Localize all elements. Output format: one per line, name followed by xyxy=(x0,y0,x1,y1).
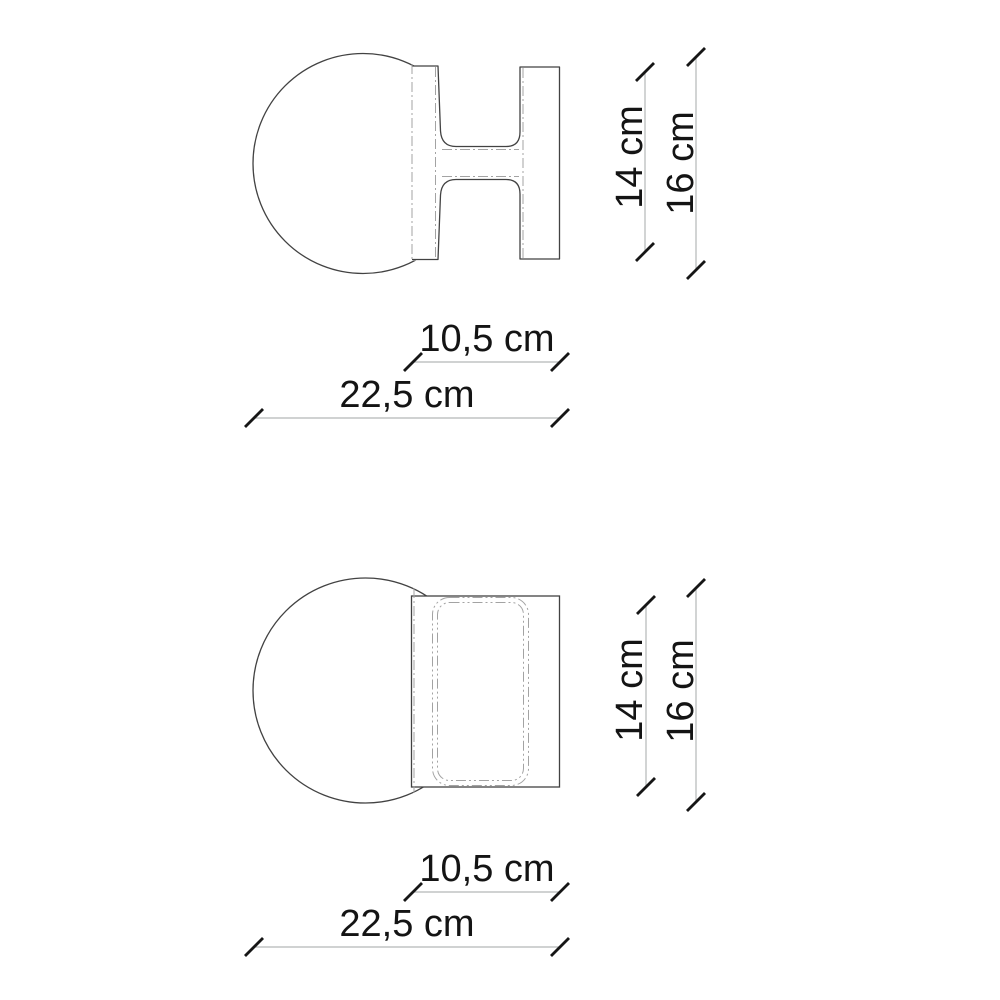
dimension-label-bracket-depth-front: 10,5 cm xyxy=(387,848,587,890)
dimension-label-bracket-height-top: 14 cm xyxy=(609,99,651,215)
technical-drawing-canvas: 14 cm 16 cm 10,5 cm 22,5 cm 14 cm 16 cm … xyxy=(0,0,1000,1000)
dimension-label-bracket-height-front: 14 cm xyxy=(609,632,651,748)
dimension-label-total-depth-top: 22,5 cm xyxy=(307,374,507,416)
dimension-label-globe-diameter-top: 16 cm xyxy=(660,105,702,221)
front-view-bracket-body xyxy=(412,596,560,787)
top-view-bracket-fill xyxy=(412,66,560,261)
dimension-label-total-depth-front: 22,5 cm xyxy=(307,903,507,945)
dimension-label-globe-diameter-front: 16 cm xyxy=(660,633,702,749)
dimension-label-bracket-depth-top: 10,5 cm xyxy=(387,318,587,360)
